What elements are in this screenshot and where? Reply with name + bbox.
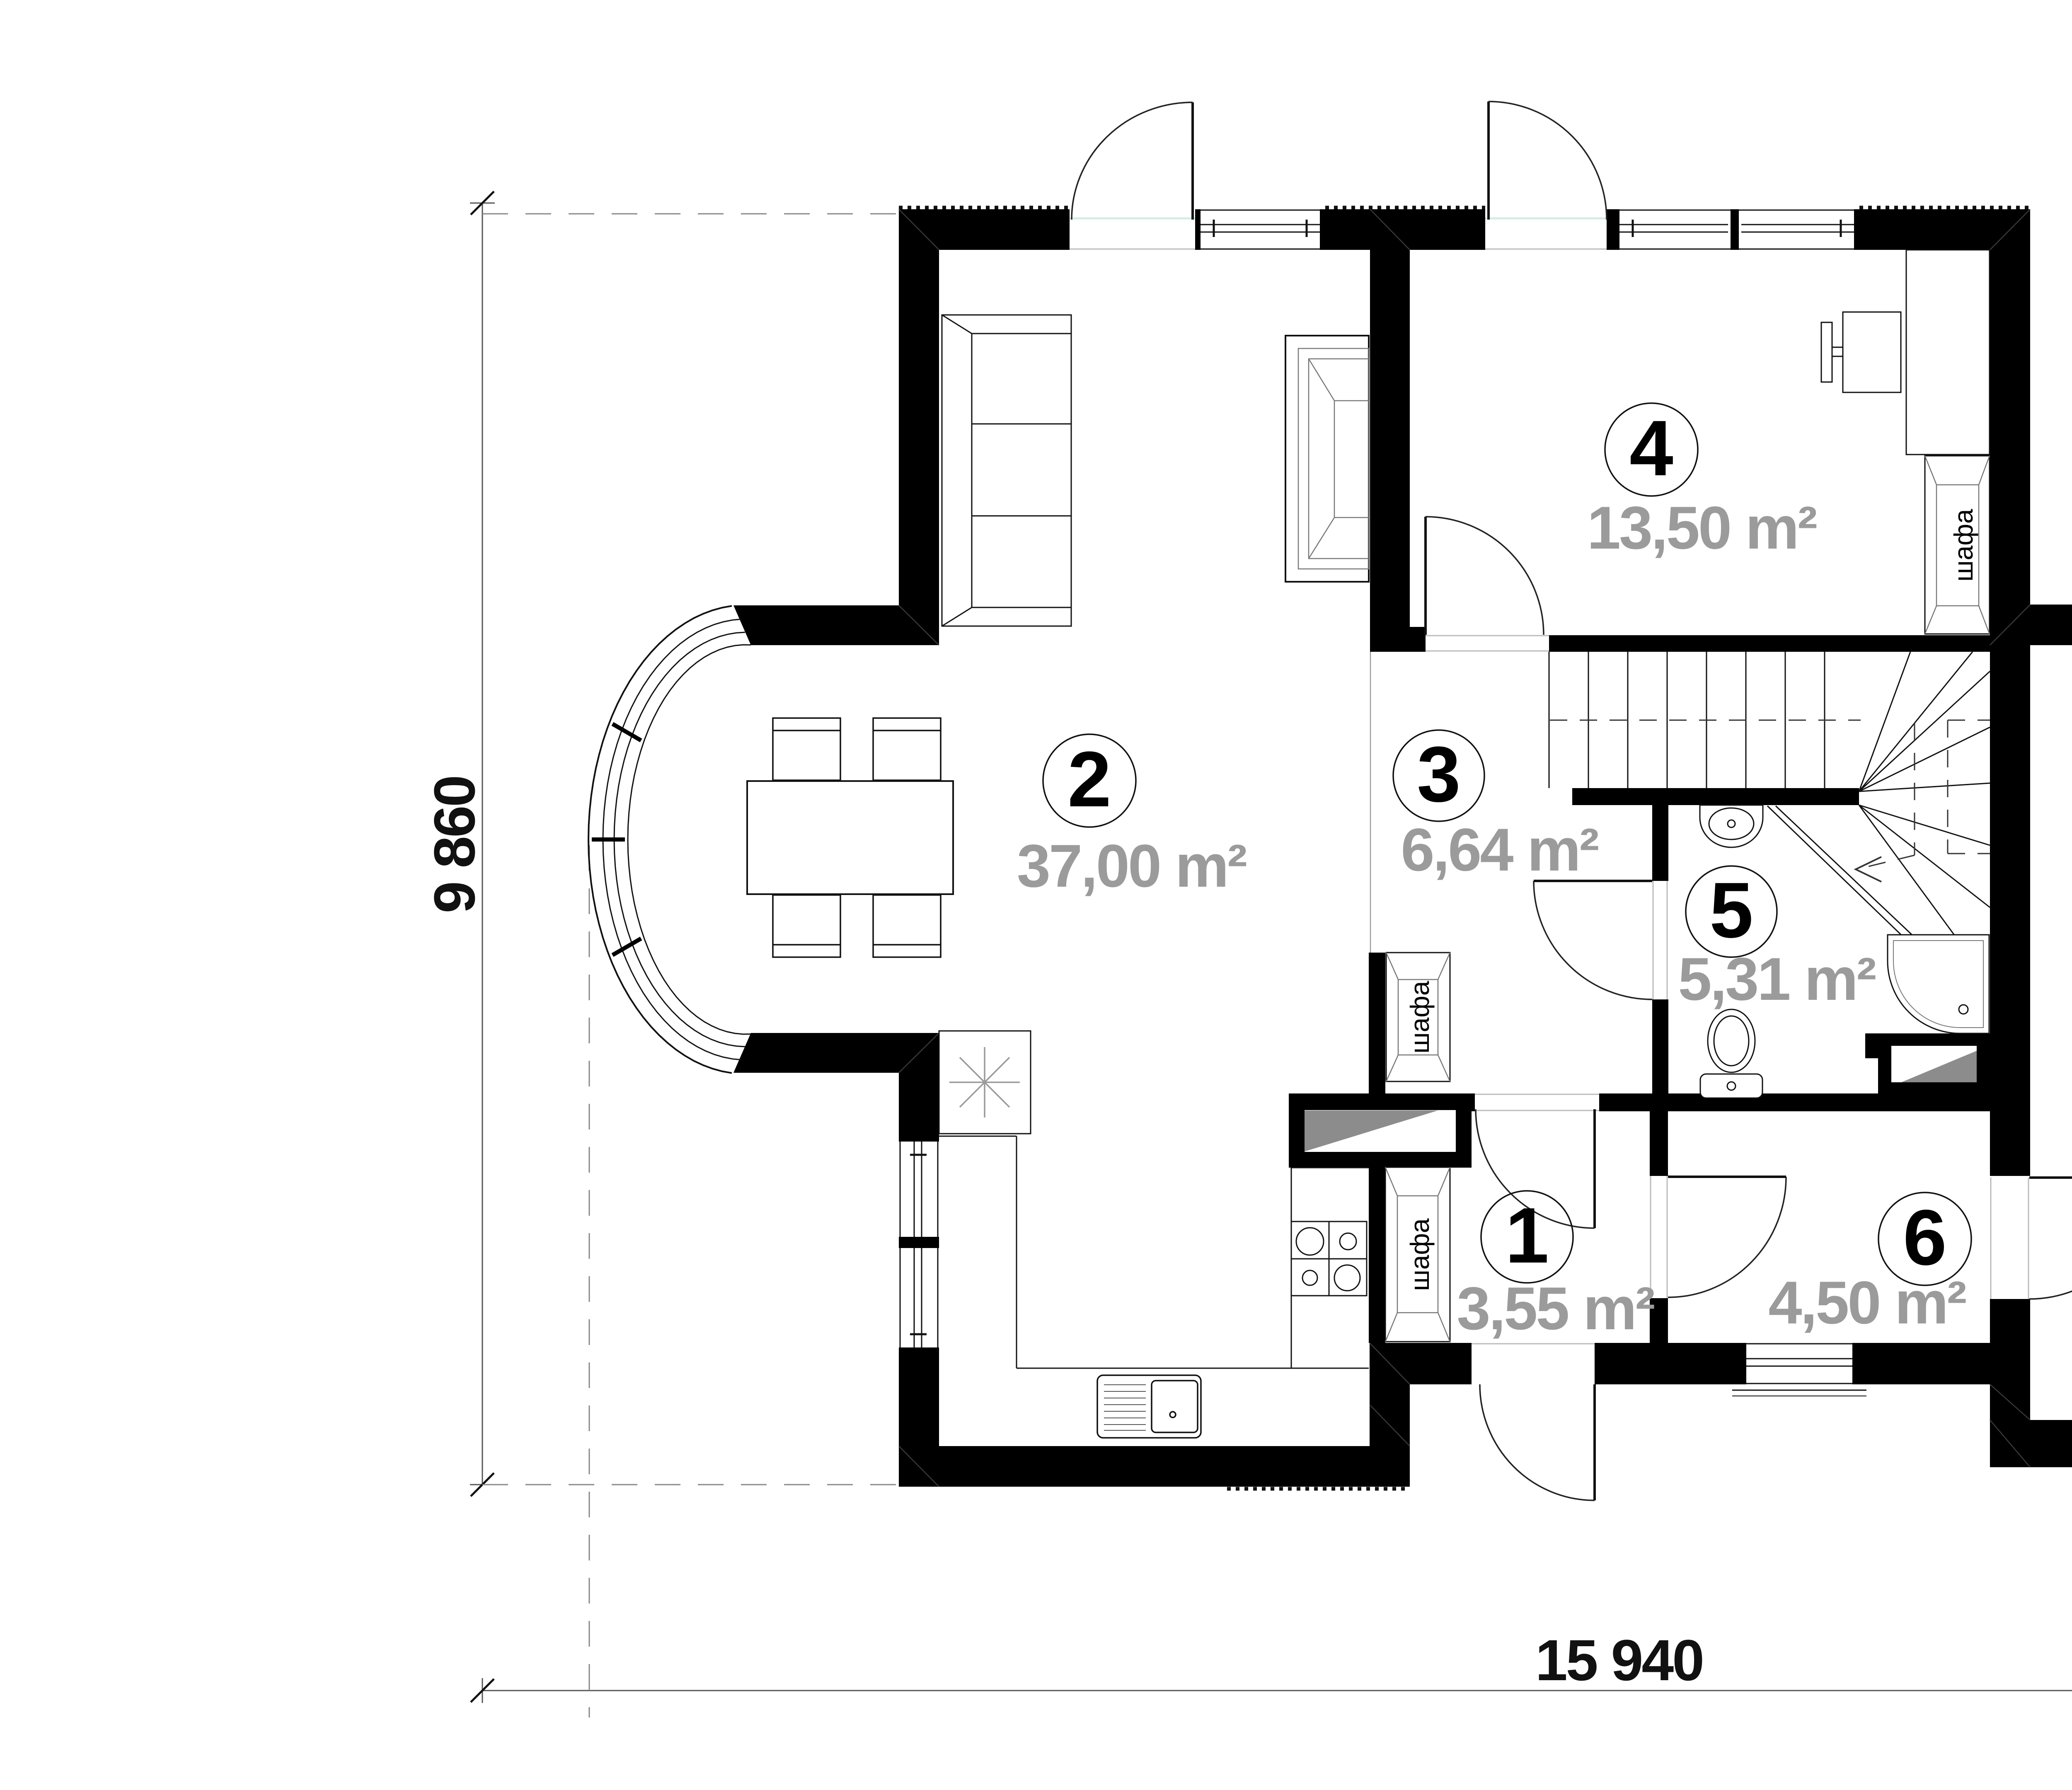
svg-text:3: 3 bbox=[1417, 731, 1461, 818]
svg-text:13,50 m²: 13,50 m² bbox=[1587, 494, 1817, 561]
svg-text:37,00 m²: 37,00 m² bbox=[1017, 832, 1247, 900]
svg-text:15 940: 15 940 bbox=[1535, 1628, 1703, 1693]
svg-text:2: 2 bbox=[1067, 735, 1111, 823]
svg-text:шафа: шафа bbox=[1405, 1218, 1435, 1291]
svg-text:шафа: шафа bbox=[1949, 509, 1978, 582]
svg-text:шафа: шафа bbox=[1405, 981, 1435, 1054]
svg-text:3,55 m²: 3,55 m² bbox=[1457, 1275, 1654, 1342]
svg-text:5,31 m²: 5,31 m² bbox=[1678, 945, 1876, 1013]
svg-text:1: 1 bbox=[1505, 1192, 1549, 1280]
svg-text:6,64 m²: 6,64 m² bbox=[1401, 816, 1598, 883]
svg-text:5: 5 bbox=[1709, 866, 1753, 954]
svg-text:9 860: 9 860 bbox=[422, 776, 487, 913]
svg-text:4: 4 bbox=[1629, 404, 1673, 492]
svg-text:4,50 m²: 4,50 m² bbox=[1768, 1269, 1966, 1336]
